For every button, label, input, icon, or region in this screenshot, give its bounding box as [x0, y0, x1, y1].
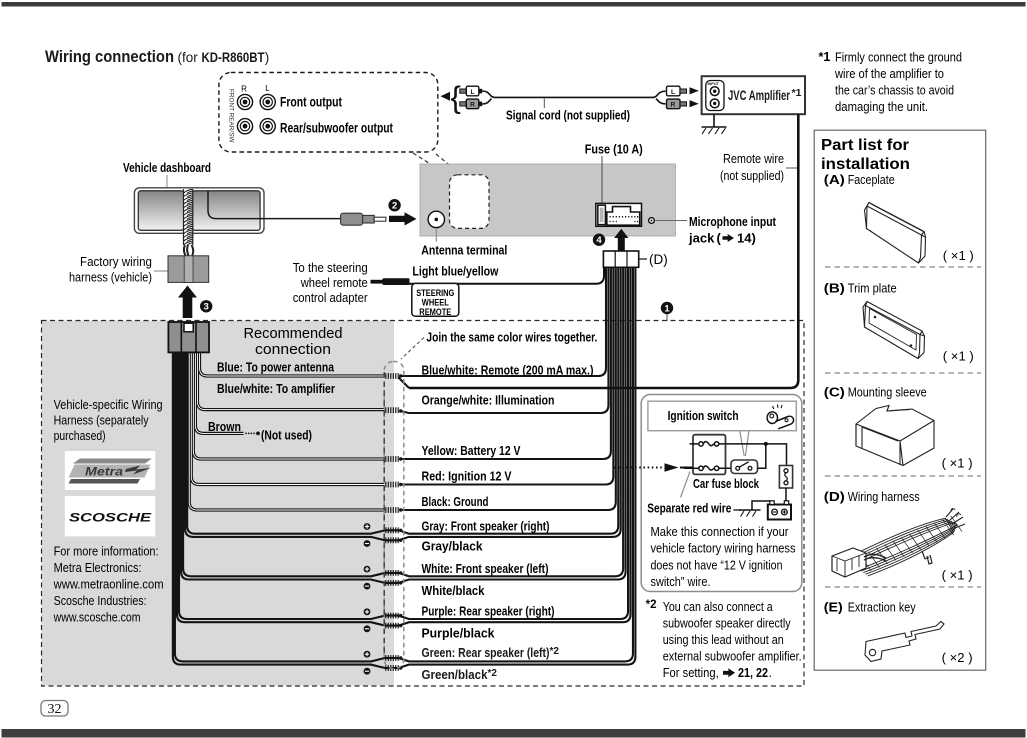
svg-text:Red: Ignition 12 V: Red: Ignition 12 V — [422, 470, 513, 484]
svg-text:2: 2 — [392, 201, 397, 212]
svg-text:( ×1 ): ( ×1 ) — [943, 350, 974, 364]
svg-text:4: 4 — [596, 235, 602, 246]
svg-text:Car fuse block: Car fuse block — [693, 477, 759, 491]
svg-text:14): 14) — [737, 231, 756, 246]
svg-text:3: 3 — [204, 302, 209, 313]
svg-text:To the steering: To the steering — [293, 260, 368, 275]
svg-text:Signal cord (not supplied): Signal cord (not supplied) — [506, 108, 630, 123]
svg-text:{: { — [451, 80, 461, 115]
svg-text:Microphone input: Microphone input — [689, 214, 777, 229]
svg-text:Factory wiring: Factory wiring — [80, 254, 152, 269]
svg-text:(: ( — [717, 231, 722, 246]
svg-text:Light blue/yellow: Light blue/yellow — [412, 264, 499, 279]
svg-text:L: L — [471, 89, 475, 96]
svg-text:wire of the amplifier to: wire of the amplifier to — [834, 66, 944, 81]
svg-text:Blue/white: To amplifier: Blue/white: To amplifier — [217, 382, 335, 396]
svg-text:Metra: Metra — [85, 467, 124, 479]
svg-text:Black: Ground: Black: Ground — [422, 495, 489, 509]
svg-text:harness (vehicle): harness (vehicle) — [69, 270, 152, 285]
svg-text:( ×1 ): ( ×1 ) — [942, 569, 973, 583]
svg-text:damaging the unit.: damaging the unit. — [835, 99, 928, 114]
svg-text:does not have “12 V ignition: does not have “12 V ignition — [651, 558, 783, 572]
svg-text:1: 1 — [664, 303, 670, 314]
svg-text:Purple: Rear speaker (right): Purple: Rear speaker (right) — [422, 605, 555, 619]
svg-text:WHEEL: WHEEL — [422, 297, 449, 307]
svg-text:JVC Amplifier: JVC Amplifier — [728, 88, 791, 103]
svg-text:R: R — [470, 102, 475, 109]
svg-text:www.metraonline.com: www.metraonline.com — [53, 578, 164, 592]
svg-text:Gray/black: Gray/black — [422, 540, 483, 554]
svg-text:INPUT: INPUT — [708, 82, 720, 86]
svg-text:Green/black*2: Green/black*2 — [422, 668, 498, 682]
svg-text:Rear/subwoofer output: Rear/subwoofer output — [280, 121, 393, 136]
svg-text:Separate red wire: Separate red wire — [647, 502, 731, 516]
svg-text:21, 22: 21, 22 — [738, 666, 768, 680]
svg-text:(B): (B) — [824, 281, 845, 296]
svg-text:REMOTE: REMOTE — [419, 307, 451, 317]
svg-text:White: Front speaker (left): White: Front speaker (left) — [422, 562, 549, 576]
svg-text:Recommended: Recommended — [244, 326, 343, 342]
svg-text:Gray: Front speaker (right): Gray: Front speaker (right) — [422, 520, 550, 534]
svg-text:For more information:: For more information: — [54, 545, 159, 559]
svg-text:Wiring connection: Wiring connection — [45, 48, 174, 66]
svg-text:For setting,: For setting, — [663, 666, 719, 680]
svg-text:Green: Rear speaker (left)*2: Green: Rear speaker (left)*2 — [422, 646, 560, 660]
svg-text:Harness (separately: Harness (separately — [54, 414, 150, 428]
svg-text:Firmly connect the ground: Firmly connect the ground — [835, 50, 962, 65]
svg-text:R: R — [671, 102, 676, 109]
svg-text:Remote wire: Remote wire — [723, 151, 784, 166]
svg-text:Metra Electronics:: Metra Electronics: — [54, 561, 142, 575]
svg-text:Mounting sleeve: Mounting sleeve — [848, 385, 927, 400]
svg-text:purchased): purchased) — [54, 429, 106, 443]
svg-text:White/black: White/black — [422, 584, 485, 598]
svg-text:( ×1 ): ( ×1 ) — [943, 249, 974, 263]
svg-text:(A): (A) — [824, 172, 845, 187]
svg-text:*1: *1 — [792, 87, 802, 99]
svg-text:(Not used): (Not used) — [261, 429, 312, 443]
svg-text:Extraction key: Extraction key — [848, 600, 916, 615]
svg-text:STEERING: STEERING — [416, 288, 454, 298]
svg-text:): ) — [265, 50, 270, 65]
svg-text:Vehicle-specific Wiring: Vehicle-specific Wiring — [54, 398, 163, 412]
svg-text:KD-R860BT: KD-R860BT — [202, 50, 266, 65]
svg-text:Trim plate: Trim plate — [848, 281, 897, 296]
svg-text:Brown: Brown — [208, 420, 241, 434]
svg-text:32: 32 — [48, 702, 62, 717]
svg-text:Scosche Industries:: Scosche Industries: — [54, 594, 147, 608]
svg-text:jack: jack — [688, 231, 715, 246]
svg-text:Purple/black: Purple/black — [422, 627, 495, 641]
svg-text:the car’s chassis to avoid: the car’s chassis to avoid — [835, 83, 954, 98]
svg-text:Blue: To power antenna: Blue: To power antenna — [217, 361, 335, 375]
svg-text:(for: (for — [178, 50, 199, 65]
svg-text:(D): (D) — [649, 252, 668, 267]
svg-text:*2: *2 — [646, 599, 657, 611]
svg-text:( ×1 ): ( ×1 ) — [942, 457, 973, 471]
svg-text:vehicle factory wiring harness: vehicle factory wiring harness — [651, 542, 796, 556]
svg-text:You can also connect a: You can also connect a — [663, 600, 773, 614]
svg-text:Front output: Front output — [280, 95, 342, 110]
svg-text:Antenna terminal: Antenna terminal — [421, 243, 507, 258]
svg-text:installation: installation — [821, 156, 910, 173]
svg-text:(D): (D) — [824, 489, 845, 504]
svg-text:Faceplate: Faceplate — [848, 172, 895, 187]
svg-text:*1: *1 — [819, 50, 831, 64]
svg-text:switch” wire.: switch” wire. — [651, 575, 711, 589]
svg-text:L: L — [671, 89, 675, 96]
svg-text:SCOSCHE: SCOSCHE — [69, 511, 152, 525]
svg-text:wheel remote: wheel remote — [300, 275, 368, 290]
svg-text:Fuse (10 A): Fuse (10 A) — [585, 142, 643, 157]
svg-text:( ×2 ): ( ×2 ) — [942, 651, 973, 665]
svg-text:www.scosche.com: www.scosche.com — [53, 611, 141, 625]
svg-text:Ignition switch: Ignition switch — [668, 409, 739, 423]
svg-text:Wiring harness: Wiring harness — [848, 489, 920, 504]
svg-text:Orange/white: Illumination: Orange/white: Illumination — [422, 394, 555, 408]
svg-text:Vehicle dashboard: Vehicle dashboard — [123, 160, 211, 175]
svg-text:FRONT REAR/SW: FRONT REAR/SW — [228, 89, 235, 143]
svg-text:Part list for: Part list for — [821, 137, 909, 154]
svg-text:connection: connection — [255, 342, 331, 358]
svg-text:.: . — [769, 666, 772, 680]
svg-text:(E): (E) — [824, 600, 843, 615]
svg-text:Blue/white: Remote (200 mA max: Blue/white: Remote (200 mA max.) — [422, 364, 594, 378]
svg-text:Yellow: Battery 12 V: Yellow: Battery 12 V — [422, 444, 522, 458]
svg-text:Join the same color wires toge: Join the same color wires together. — [426, 331, 597, 345]
svg-text:external subwoofer amplifier.: external subwoofer amplifier. — [663, 650, 802, 664]
svg-text:using this lead without an: using this lead without an — [663, 633, 784, 647]
svg-text:subwoofer speaker directly: subwoofer speaker directly — [663, 617, 792, 631]
svg-text:(not supplied): (not supplied) — [720, 168, 784, 183]
svg-text:control adapter: control adapter — [293, 290, 369, 305]
svg-text:(C): (C) — [824, 385, 845, 400]
svg-text:Make this connection if your: Make this connection if your — [651, 525, 789, 539]
svg-text:L: L — [265, 84, 270, 93]
svg-text:R: R — [241, 85, 247, 94]
